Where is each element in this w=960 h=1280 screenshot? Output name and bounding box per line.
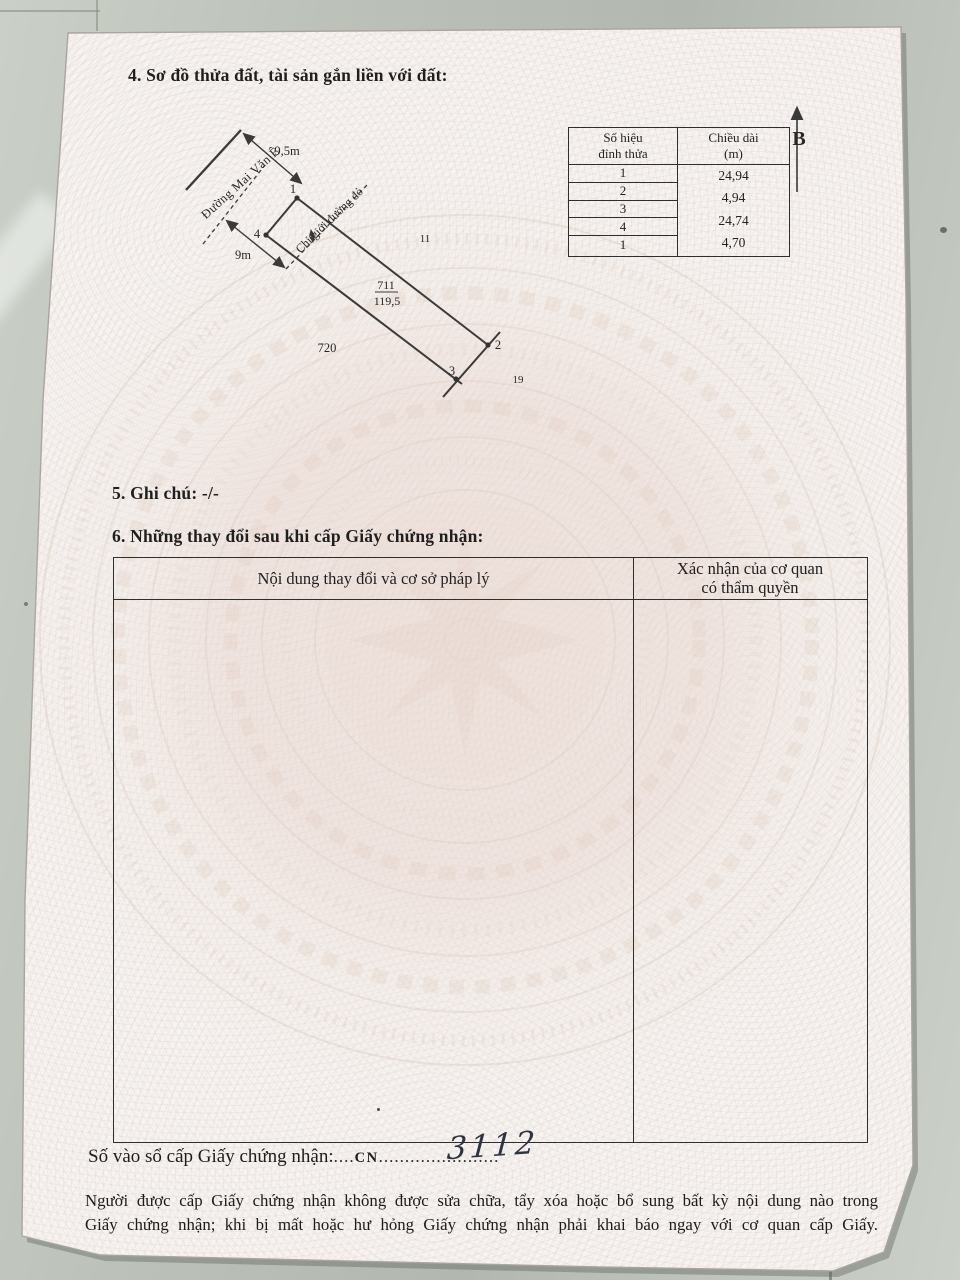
vertex-id-value: 4 (620, 219, 627, 235)
vertex-length-table: Số hiệu đỉnh thửa 1 2 3 4 1 Chiều dài (m… (568, 127, 790, 257)
vertex-id-cell: 1 (569, 236, 677, 254)
vertex-id-value: 1 (620, 237, 627, 253)
vertex-id-header: Số hiệu đỉnh thửa (569, 128, 677, 165)
red-boundary-label: Chỉ giới đường đỏ (293, 184, 366, 255)
parcel-side-4-1 (266, 198, 297, 235)
parcel-area-label: 119,5 (374, 294, 401, 308)
dim-line-9m (227, 221, 284, 267)
parcel-side-4-3 (266, 235, 462, 384)
red-boundary-dash-right (286, 185, 367, 269)
parcel-side-1-2 (297, 198, 488, 345)
length-value: 24,94 (718, 168, 748, 184)
adjacent-parcel-11: 11 (420, 233, 431, 245)
dim-label-9-5m: 9,5m (274, 144, 300, 158)
changes-content-header: Nội dung thay đổi và cơ sở pháp lý (114, 558, 633, 600)
changes-table-column-divider (633, 558, 634, 1142)
road-far-edge-line (186, 130, 241, 190)
dim-line-9-5m (244, 134, 301, 183)
vertex-id-cell: 3 (569, 201, 677, 219)
length-column: Chiều dài (m) 24,94 4,94 24,74 4,70 (677, 128, 789, 256)
registry-number-line: Số vào sổ cấp Giấy chứng nhận:....CN....… (88, 1146, 499, 1168)
registry-dots-1: .... (334, 1147, 355, 1166)
length-header-line2: (m) (724, 146, 743, 162)
vertex-label-4: 4 (254, 227, 261, 241)
vertex-id-value: 2 (620, 183, 627, 199)
vertex-id-cell: 2 (569, 183, 677, 201)
footer-line1: Người được cấp Giấy chứng nhận không đượ… (85, 1189, 878, 1213)
changes-confirmation-header: Xác nhận của cơ quan có thẩm quyền (633, 558, 867, 600)
vertex-label-1: 1 (290, 182, 296, 196)
red-boundary-dash-left (203, 165, 265, 244)
section4-title: 4. Sơ đồ thửa đất, tài sản gắn liền với … (128, 65, 448, 86)
vertex-point-2 (485, 342, 490, 347)
vertex-id-header-line2: đỉnh thửa (598, 146, 647, 162)
changes-table: Nội dung thay đổi và cơ sở pháp lý Xác n… (113, 557, 868, 1143)
parcel-number-label: 711 (377, 278, 395, 292)
confirmation-header-line2: có thẩm quyền (701, 579, 798, 598)
adjacent-parcel-720: 720 (318, 341, 337, 355)
vertex-id-cell: 4 (569, 218, 677, 236)
road-name-label: Đường Mai Văn Ê (198, 144, 282, 221)
photo-of-certificate-page: 4. Sơ đồ thửa đất, tài sản gắn liền với … (0, 0, 960, 1280)
dim-label-9m: 9m (235, 248, 251, 262)
section6-title: 6. Những thay đổi sau khi cấp Giấy chứng… (112, 526, 484, 547)
north-label: B (792, 128, 805, 150)
confirmation-header-line1: Xác nhận của cơ quan (677, 560, 823, 579)
registry-dots-2: ........ (379, 1147, 421, 1166)
vertex-id-value: 1 (620, 165, 627, 181)
vertex-point-3 (453, 376, 458, 381)
section5-title: 5. Ghi chú: -/- (112, 483, 219, 504)
registry-number-handwritten: 3112 (446, 1125, 539, 1168)
vertex-point-4 (263, 232, 268, 237)
vertex-label-3: 3 (449, 364, 455, 378)
stray-ink-dot (377, 1108, 380, 1111)
vertex-id-header-line1: Số hiệu (603, 130, 642, 146)
length-header: Chiều dài (m) (678, 128, 789, 165)
red-boundary-tick (311, 230, 313, 242)
registry-code: CN (355, 1150, 379, 1166)
length-value: 24,74 (718, 213, 748, 229)
length-value: 4,94 (722, 190, 746, 206)
length-values: 24,94 4,94 24,74 4,70 (678, 165, 789, 254)
vertex-id-column: Số hiệu đỉnh thửa 1 2 3 4 1 (569, 128, 677, 256)
length-header-line1: Chiều dài (708, 130, 758, 146)
adjacent-parcel-19: 19 (513, 374, 525, 386)
registry-label: Số vào sổ cấp Giấy chứng nhận: (88, 1146, 334, 1167)
vertex-id-cell: 1 (569, 165, 677, 183)
vertex-id-value: 3 (620, 201, 627, 217)
parcel-side-2-3-extended (443, 332, 500, 397)
footer-notice: Người được cấp Giấy chứng nhận không đượ… (85, 1189, 878, 1238)
footer-line2: Giấy chứng nhận; khi bị mất hoặc hư hỏng… (85, 1213, 878, 1237)
length-value: 4,70 (722, 235, 746, 251)
vertex-label-2: 2 (495, 338, 501, 352)
vertex-point-1 (294, 195, 299, 200)
